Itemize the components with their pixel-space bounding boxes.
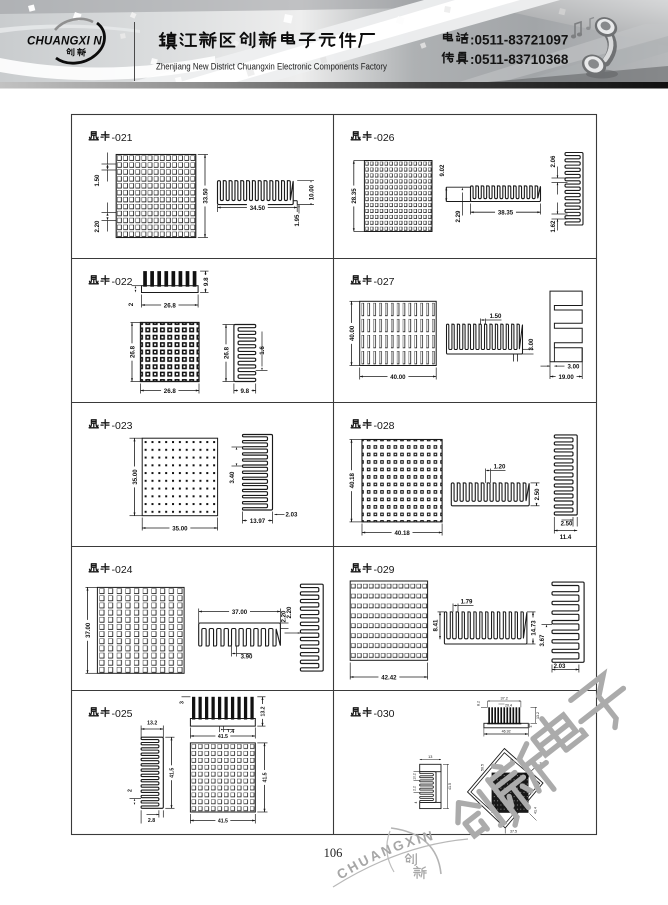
svg-text:-028: -028 bbox=[374, 420, 395, 432]
svg-text:26.8: 26.8 bbox=[164, 388, 177, 395]
svg-text:-029: -029 bbox=[374, 564, 395, 576]
svg-text:10.2: 10.2 bbox=[413, 773, 417, 780]
svg-text:3.00: 3.00 bbox=[568, 363, 580, 370]
svg-text:3: 3 bbox=[180, 701, 186, 704]
svg-text:35.00: 35.00 bbox=[132, 469, 139, 485]
svg-text:40.00: 40.00 bbox=[390, 374, 406, 381]
svg-text:38.35: 38.35 bbox=[498, 210, 514, 217]
svg-text:1.6: 1.6 bbox=[259, 346, 266, 355]
svg-text:20.4: 20.4 bbox=[505, 704, 512, 708]
svg-text:34.50: 34.50 bbox=[250, 205, 266, 212]
svg-text:2: 2 bbox=[128, 302, 135, 306]
svg-text:13: 13 bbox=[428, 755, 432, 759]
svg-text:40.00: 40.00 bbox=[349, 325, 356, 341]
svg-text:3: 3 bbox=[529, 725, 533, 727]
svg-text:37.00: 37.00 bbox=[232, 609, 248, 616]
svg-text:10.00: 10.00 bbox=[308, 184, 315, 200]
svg-text:3.40: 3.40 bbox=[229, 471, 236, 483]
svg-text:1.79: 1.79 bbox=[461, 599, 473, 606]
svg-text:8.41: 8.41 bbox=[433, 619, 440, 631]
svg-text:-027: -027 bbox=[374, 276, 395, 288]
svg-text:-022: -022 bbox=[112, 276, 133, 288]
svg-text:9.8: 9.8 bbox=[240, 388, 249, 395]
svg-text:40.18: 40.18 bbox=[349, 472, 356, 488]
svg-text:2.50: 2.50 bbox=[534, 488, 541, 500]
svg-text:3.00: 3.00 bbox=[528, 338, 535, 350]
svg-text:-025: -025 bbox=[112, 708, 133, 720]
svg-text:4: 4 bbox=[414, 801, 418, 803]
svg-text:2.06: 2.06 bbox=[550, 155, 557, 167]
svg-text:-021: -021 bbox=[112, 132, 133, 144]
svg-text:-024: -024 bbox=[112, 564, 133, 576]
svg-text:106: 106 bbox=[324, 846, 343, 860]
svg-text:1.20: 1.20 bbox=[494, 464, 506, 471]
svg-text:41.5: 41.5 bbox=[218, 734, 228, 740]
svg-text:CHUANGXI N: CHUANGXI N bbox=[27, 36, 102, 48]
svg-text:2.03: 2.03 bbox=[286, 512, 298, 519]
svg-text:9.8: 9.8 bbox=[203, 277, 210, 286]
svg-text:-030: -030 bbox=[374, 708, 395, 720]
svg-text:-026: -026 bbox=[374, 132, 395, 144]
svg-text:41.5: 41.5 bbox=[263, 772, 269, 782]
svg-text:28.35: 28.35 bbox=[351, 188, 358, 204]
svg-text:8.2: 8.2 bbox=[477, 701, 481, 706]
svg-text::0511-83721097: :0511-83721097 bbox=[470, 33, 568, 48]
svg-text:37.2: 37.2 bbox=[501, 697, 508, 701]
svg-text:2: 2 bbox=[128, 789, 134, 792]
svg-text:2.2: 2.2 bbox=[413, 786, 417, 791]
svg-text:2.29: 2.29 bbox=[455, 210, 462, 222]
svg-text:3.90: 3.90 bbox=[241, 654, 253, 661]
svg-text:Zhenjiang New District Chuangx: Zhenjiang New District Chuangxin Electro… bbox=[156, 62, 387, 73]
svg-text:13.2: 13.2 bbox=[261, 706, 267, 716]
svg-text:33.50: 33.50 bbox=[202, 188, 209, 204]
svg-text:42.42: 42.42 bbox=[381, 674, 397, 681]
svg-text:19.00: 19.00 bbox=[558, 374, 574, 381]
svg-text:13.2: 13.2 bbox=[147, 721, 157, 727]
svg-text::0511-83710368: :0511-83710368 bbox=[470, 52, 569, 67]
svg-text:14.73: 14.73 bbox=[530, 620, 537, 636]
svg-text:1.95: 1.95 bbox=[294, 214, 301, 226]
svg-text:11.4: 11.4 bbox=[560, 534, 572, 541]
svg-text:2.8: 2.8 bbox=[148, 818, 155, 824]
svg-text:9.02: 9.02 bbox=[439, 164, 446, 176]
svg-text:40.18: 40.18 bbox=[394, 530, 410, 537]
svg-text:37.5: 37.5 bbox=[510, 830, 517, 834]
svg-text:1.50: 1.50 bbox=[490, 313, 502, 320]
svg-text:26.8: 26.8 bbox=[223, 346, 230, 359]
svg-text:37.00: 37.00 bbox=[85, 622, 92, 638]
svg-text:41.5: 41.5 bbox=[170, 768, 176, 778]
svg-text:-023: -023 bbox=[112, 420, 133, 432]
svg-text:2.20: 2.20 bbox=[286, 606, 293, 618]
svg-text:26.8: 26.8 bbox=[129, 345, 136, 358]
svg-text:2.20: 2.20 bbox=[94, 220, 101, 232]
svg-text:13.97: 13.97 bbox=[250, 518, 266, 525]
svg-text:41.5: 41.5 bbox=[448, 783, 452, 790]
svg-text:3.67: 3.67 bbox=[539, 634, 546, 646]
svg-text:41.4: 41.4 bbox=[534, 807, 538, 814]
svg-text:1.62: 1.62 bbox=[550, 220, 557, 232]
svg-text:2.03: 2.03 bbox=[554, 663, 566, 670]
svg-text:26.8: 26.8 bbox=[164, 302, 177, 309]
svg-text:50.5: 50.5 bbox=[481, 764, 485, 771]
svg-text:2.50: 2.50 bbox=[561, 521, 573, 528]
svg-text:46.92: 46.92 bbox=[502, 730, 511, 734]
svg-text:1.50: 1.50 bbox=[94, 174, 101, 186]
svg-text:35.00: 35.00 bbox=[172, 525, 188, 532]
svg-text:41.5: 41.5 bbox=[218, 819, 228, 825]
